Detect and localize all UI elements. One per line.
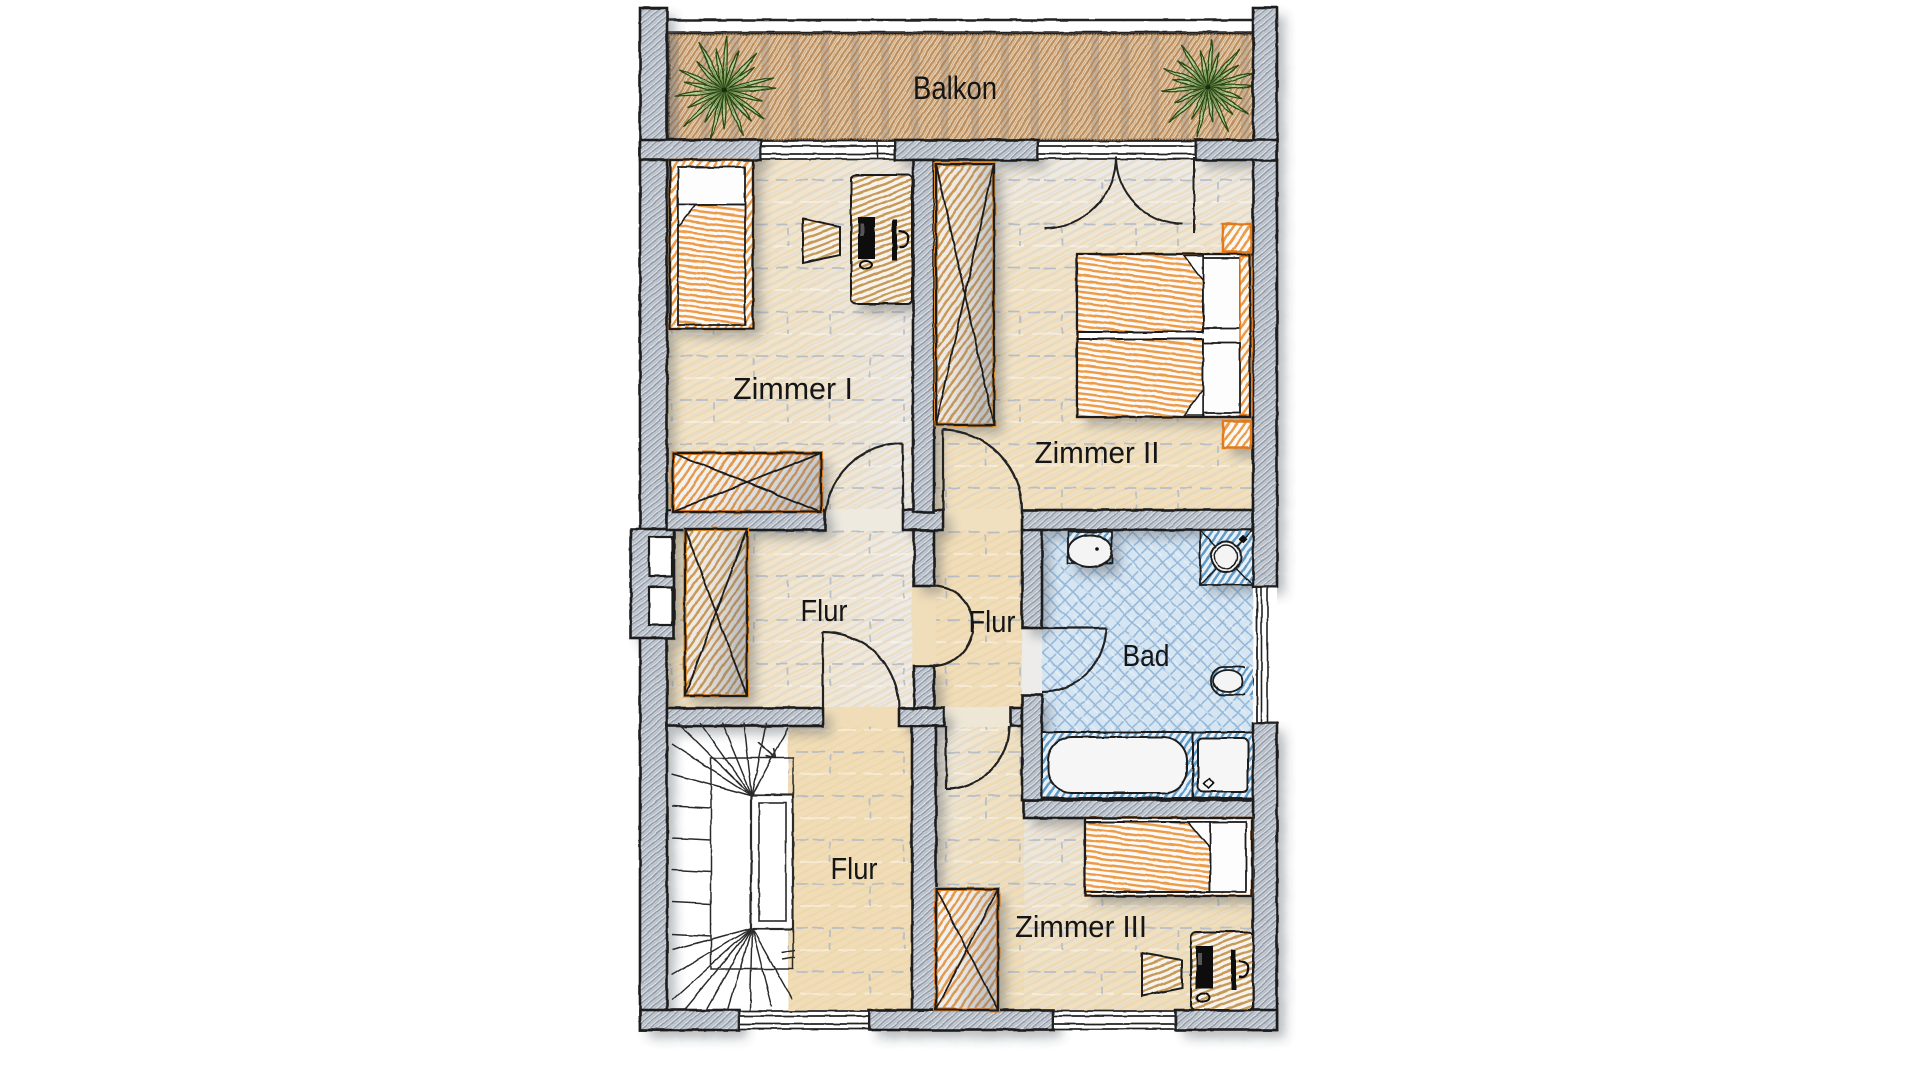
svg-text:Flur: Flur xyxy=(831,851,878,886)
svg-text:Zimmer I: Zimmer I xyxy=(733,371,853,406)
svg-text:Flur: Flur xyxy=(801,593,848,628)
svg-text:Zimmer II: Zimmer II xyxy=(1035,435,1160,470)
svg-text:Zimmer III: Zimmer III xyxy=(1015,909,1147,944)
svg-text:Bad: Bad xyxy=(1123,638,1170,673)
svg-text:Balkon: Balkon xyxy=(913,70,997,106)
svg-text:Flur: Flur xyxy=(969,604,1016,639)
